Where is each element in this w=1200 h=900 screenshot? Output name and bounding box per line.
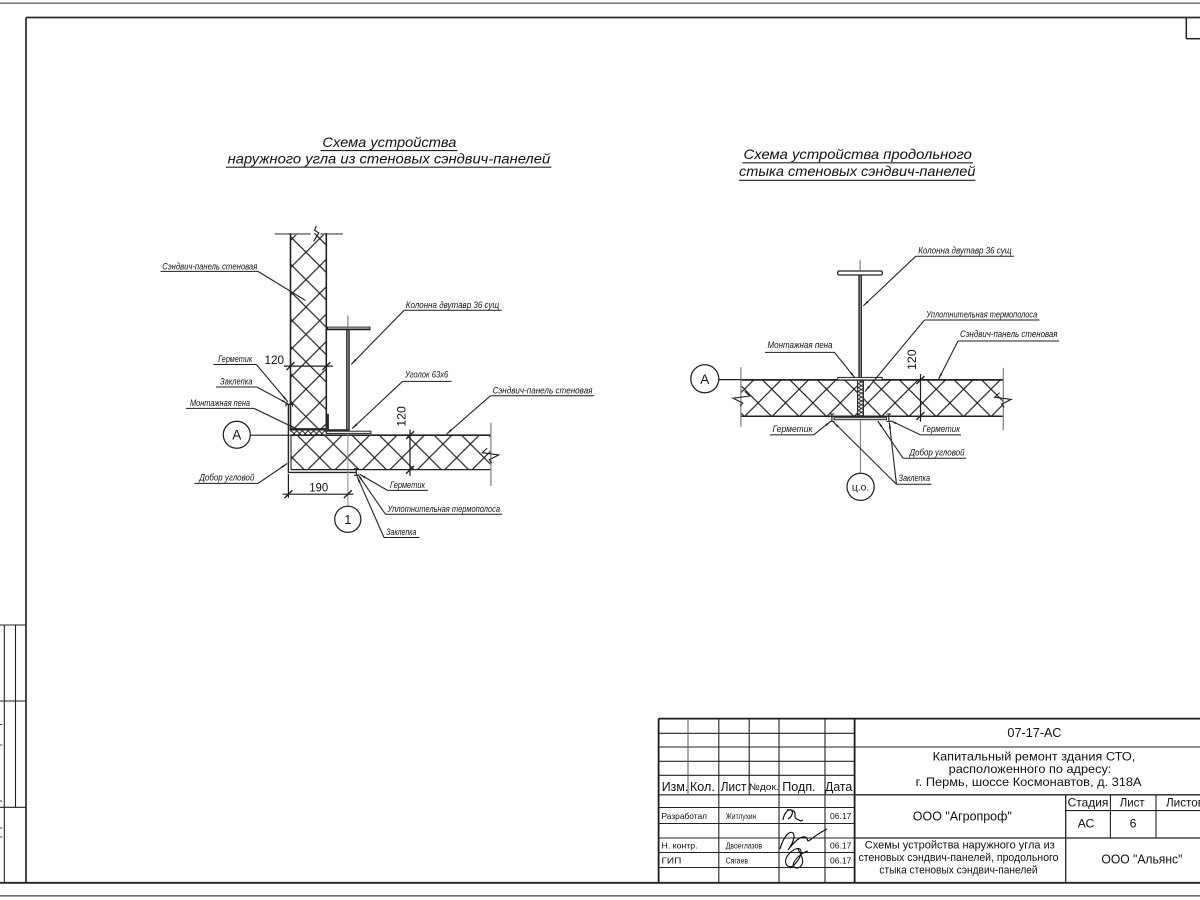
svg-text:Дата: Дата: [825, 779, 853, 794]
svg-text:Стадия: Стадия: [1068, 796, 1109, 810]
svg-text:А: А: [700, 372, 709, 387]
svg-text:ООО "Агропроф": ООО "Агропроф": [913, 810, 1012, 824]
svg-text:120: 120: [905, 349, 919, 370]
svg-text:1: 1: [344, 513, 351, 527]
svg-text:06.17: 06.17: [830, 811, 852, 821]
svg-text:Уплотнительная термополоса: Уплотнительная термополоса: [926, 309, 1038, 320]
svg-text:Подп.: Подп.: [782, 779, 815, 794]
svg-text:Колонна двутавр 36 сущ: Колонна двутавр 36 сущ: [406, 300, 499, 311]
svg-text:стыка стеновых сэндвич-панелей: стыка стеновых сэндвич-панелей: [739, 164, 976, 179]
svg-text:Листов: Листов: [1166, 796, 1200, 810]
svg-text:ГИП: ГИП: [662, 857, 682, 866]
svg-text:Н. контр.: Н. контр.: [662, 842, 698, 851]
svg-text:ООО "Альянс": ООО "Альянс": [1101, 852, 1182, 867]
svg-text:Монтажная пена: Монтажная пена: [768, 340, 833, 351]
svg-text:Сэндвич-панель стеновая: Сэндвич-панель стеновая: [493, 386, 593, 397]
svg-text:Изм.: Изм.: [662, 779, 689, 794]
svg-text:Заклепка: Заклепка: [220, 376, 253, 387]
svg-text:Герметик: Герметик: [773, 424, 813, 435]
svg-text:стыка стеновых сэндвич-панелей: стыка стеновых сэндвич-панелей: [879, 864, 1037, 876]
svg-text:Уплотнительная термополоса: Уплотнительная термополоса: [387, 504, 500, 515]
svg-text:Разработал: Разработал: [662, 812, 708, 821]
svg-text:АС: АС: [1078, 816, 1095, 830]
svg-text:ц.о.: ц.о.: [852, 482, 869, 493]
svg-text:Герметик: Герметик: [218, 354, 252, 365]
svg-text:Герметик: Герметик: [390, 480, 425, 491]
svg-text:Кол.: Кол.: [690, 779, 715, 794]
svg-text:120: 120: [395, 406, 409, 427]
svg-text:Уголок 63х6: Уголок 63х6: [404, 369, 449, 380]
svg-text:наружного угла из стеновых сэн: наружного угла из стеновых сэндвич-панел…: [228, 152, 551, 167]
svg-text:Сягаев: Сягаев: [726, 857, 748, 866]
svg-text:06.17: 06.17: [830, 841, 852, 851]
svg-text:Сэндвич-панель стеновая: Сэндвич-панель стеновая: [960, 329, 1058, 340]
svg-text:№док.: №док.: [749, 782, 779, 793]
svg-text:Заклепка: Заклепка: [386, 527, 416, 538]
svg-text:120: 120: [265, 353, 285, 367]
svg-text:Лист: Лист: [1120, 796, 1145, 810]
svg-text:06.17: 06.17: [830, 856, 852, 866]
svg-text:Добор угловой: Добор угловой: [199, 473, 255, 484]
svg-text:Лист: Лист: [721, 779, 747, 794]
svg-text:Монтажная пена: Монтажная пена: [190, 398, 250, 409]
svg-text:190: 190: [309, 480, 328, 494]
svg-text:Заклепка: Заклепка: [899, 473, 931, 484]
svg-text:Двоеглазов: Двоеглазов: [726, 842, 762, 851]
svg-text:Схемы устройства наружного угл: Схемы устройства наружного угла из: [865, 840, 1055, 852]
svg-text:Схема устройства: Схема устройства: [322, 135, 456, 150]
svg-text:6: 6: [1130, 816, 1137, 830]
svg-text:Герметик: Герметик: [923, 424, 961, 435]
svg-text:стеновых сэндвич-панелей, прод: стеновых сэндвич-панелей, продольного: [859, 852, 1059, 864]
svg-text:расположенного по адресу:: расположенного по адресу:: [949, 762, 1112, 776]
svg-text:Схема устройства продольного: Схема устройства продольного: [744, 147, 973, 162]
svg-text:г. Пермь, шоссе Космонавтов, д: г. Пермь, шоссе Космонавтов, д. 318А: [916, 775, 1143, 789]
svg-text:А: А: [232, 428, 241, 443]
svg-text:Колонна двутавр 36 сущ: Колонна двутавр 36 сущ: [918, 245, 1011, 256]
svg-text:Добор угловой: Добор угловой: [909, 447, 965, 458]
svg-text:07-17-АС: 07-17-АС: [1007, 725, 1061, 740]
svg-text:Житлухин: Житлухин: [726, 812, 756, 821]
